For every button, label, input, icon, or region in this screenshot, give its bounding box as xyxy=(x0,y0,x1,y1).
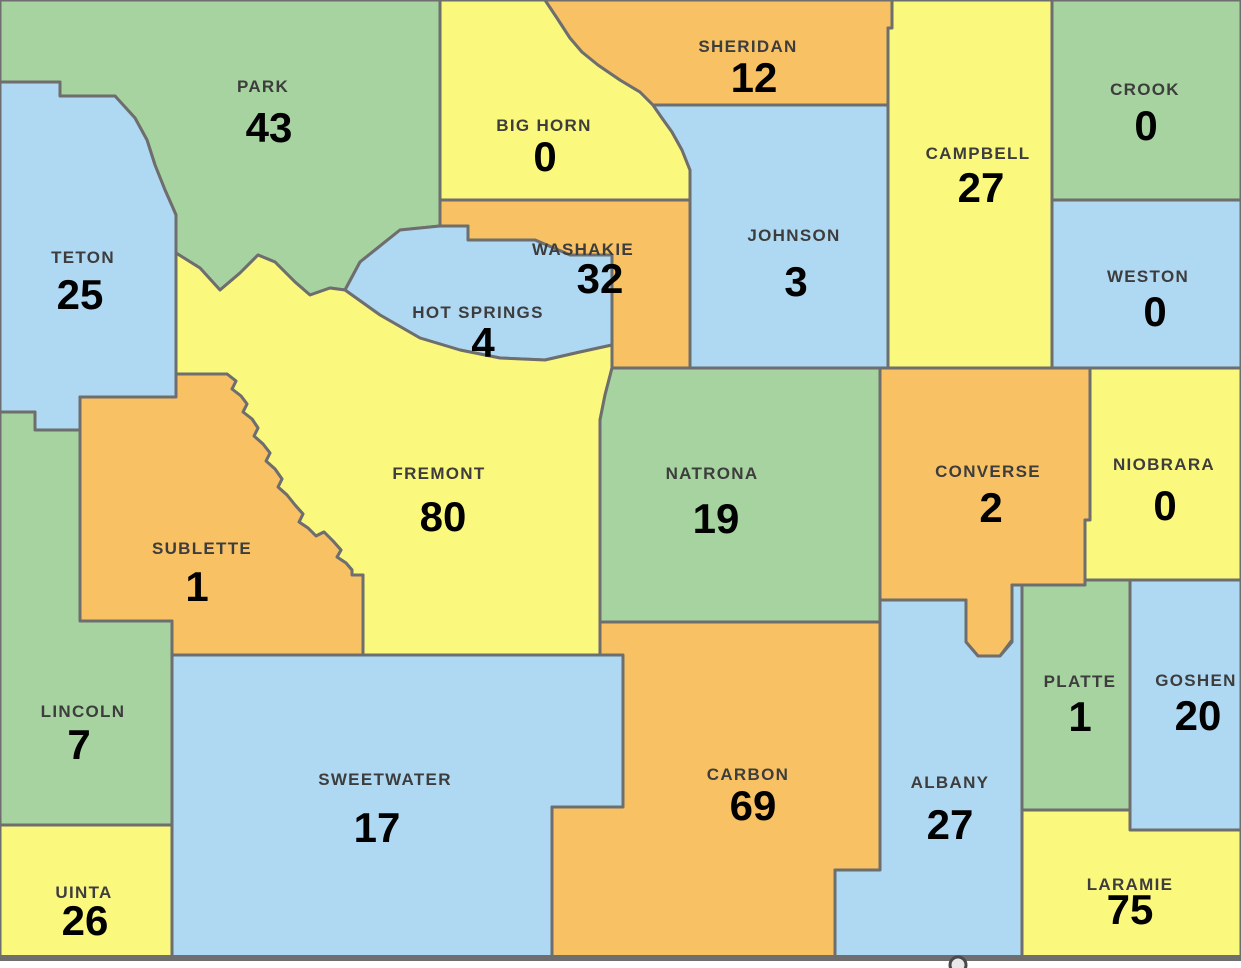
county-value-lincoln: 7 xyxy=(67,721,90,768)
county-value-sweetwater: 17 xyxy=(354,804,401,851)
county-name-weston: WESTON xyxy=(1107,267,1189,286)
county-name-campbell: CAMPBELL xyxy=(926,144,1031,163)
wyoming-county-map: PARK43BIG HORN0SHERIDAN12CAMPBELL27CROOK… xyxy=(0,0,1241,968)
county-value-weston: 0 xyxy=(1143,288,1166,335)
county-value-platte: 1 xyxy=(1068,693,1091,740)
county-name-albany: ALBANY xyxy=(911,773,990,792)
county-name-park: PARK xyxy=(237,77,289,96)
county-value-goshen: 20 xyxy=(1175,692,1222,739)
county-value-carbon: 69 xyxy=(730,782,777,829)
map-canvas: PARK43BIG HORN0SHERIDAN12CAMPBELL27CROOK… xyxy=(0,0,1241,968)
county-name-crook: CROOK xyxy=(1110,80,1180,99)
county-value-teton: 25 xyxy=(57,271,104,318)
county-layer xyxy=(0,0,1241,958)
county-value-crook: 0 xyxy=(1134,102,1157,149)
county-name-natrona: NATRONA xyxy=(666,464,759,483)
county-value-campbell: 27 xyxy=(958,164,1005,211)
county-name-platte: PLATTE xyxy=(1044,672,1117,691)
county-value-sheridan: 12 xyxy=(731,54,778,101)
county-shape-niobrara xyxy=(1085,368,1241,580)
county-name-johnson: JOHNSON xyxy=(747,226,840,245)
county-value-park: 43 xyxy=(246,104,293,151)
county-value-big-horn: 0 xyxy=(533,133,556,180)
county-name-sublette: SUBLETTE xyxy=(152,539,252,558)
county-name-converse: CONVERSE xyxy=(935,462,1041,481)
county-value-uinta: 26 xyxy=(62,897,109,944)
county-value-hot-springs: 4 xyxy=(471,319,495,366)
county-name-fremont: FREMONT xyxy=(392,464,485,483)
county-shape-natrona xyxy=(600,368,880,622)
cropped-logo-fragment xyxy=(950,957,966,968)
county-value-washakie: 32 xyxy=(577,255,624,302)
county-value-fremont: 80 xyxy=(420,493,467,540)
county-value-johnson: 3 xyxy=(784,258,807,305)
county-name-lincoln: LINCOLN xyxy=(41,702,126,721)
county-name-goshen: GOSHEN xyxy=(1155,671,1236,690)
county-value-converse: 2 xyxy=(979,484,1002,531)
county-name-teton: TETON xyxy=(51,248,115,267)
county-shape-crook xyxy=(1052,0,1241,200)
county-value-niobrara: 0 xyxy=(1153,482,1176,529)
county-value-sublette: 1 xyxy=(185,563,208,610)
county-name-sweetwater: SWEETWATER xyxy=(318,770,452,789)
county-value-albany: 27 xyxy=(927,801,974,848)
county-value-laramie: 75 xyxy=(1107,886,1154,933)
county-value-natrona: 19 xyxy=(693,495,740,542)
county-name-niobrara: NIOBRARA xyxy=(1113,455,1215,474)
